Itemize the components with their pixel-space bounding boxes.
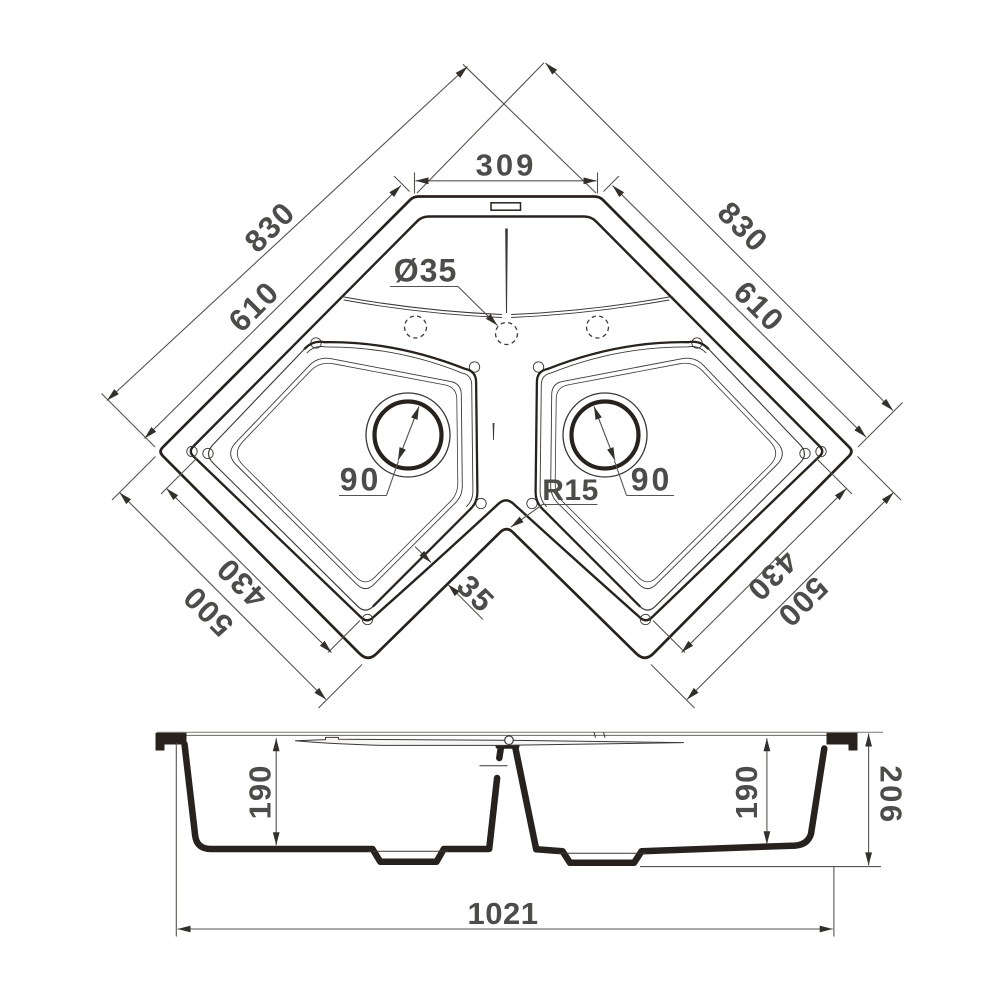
svg-text:206: 206 <box>874 765 909 824</box>
svg-text:190: 190 <box>729 765 764 820</box>
svg-text:90: 90 <box>340 462 382 498</box>
svg-text:1021: 1021 <box>468 896 539 931</box>
svg-text:190: 190 <box>243 765 278 820</box>
svg-text:Ø35: Ø35 <box>394 253 457 289</box>
svg-text:90: 90 <box>631 462 673 498</box>
svg-text:R15: R15 <box>542 474 599 507</box>
svg-text:309: 309 <box>476 148 537 183</box>
